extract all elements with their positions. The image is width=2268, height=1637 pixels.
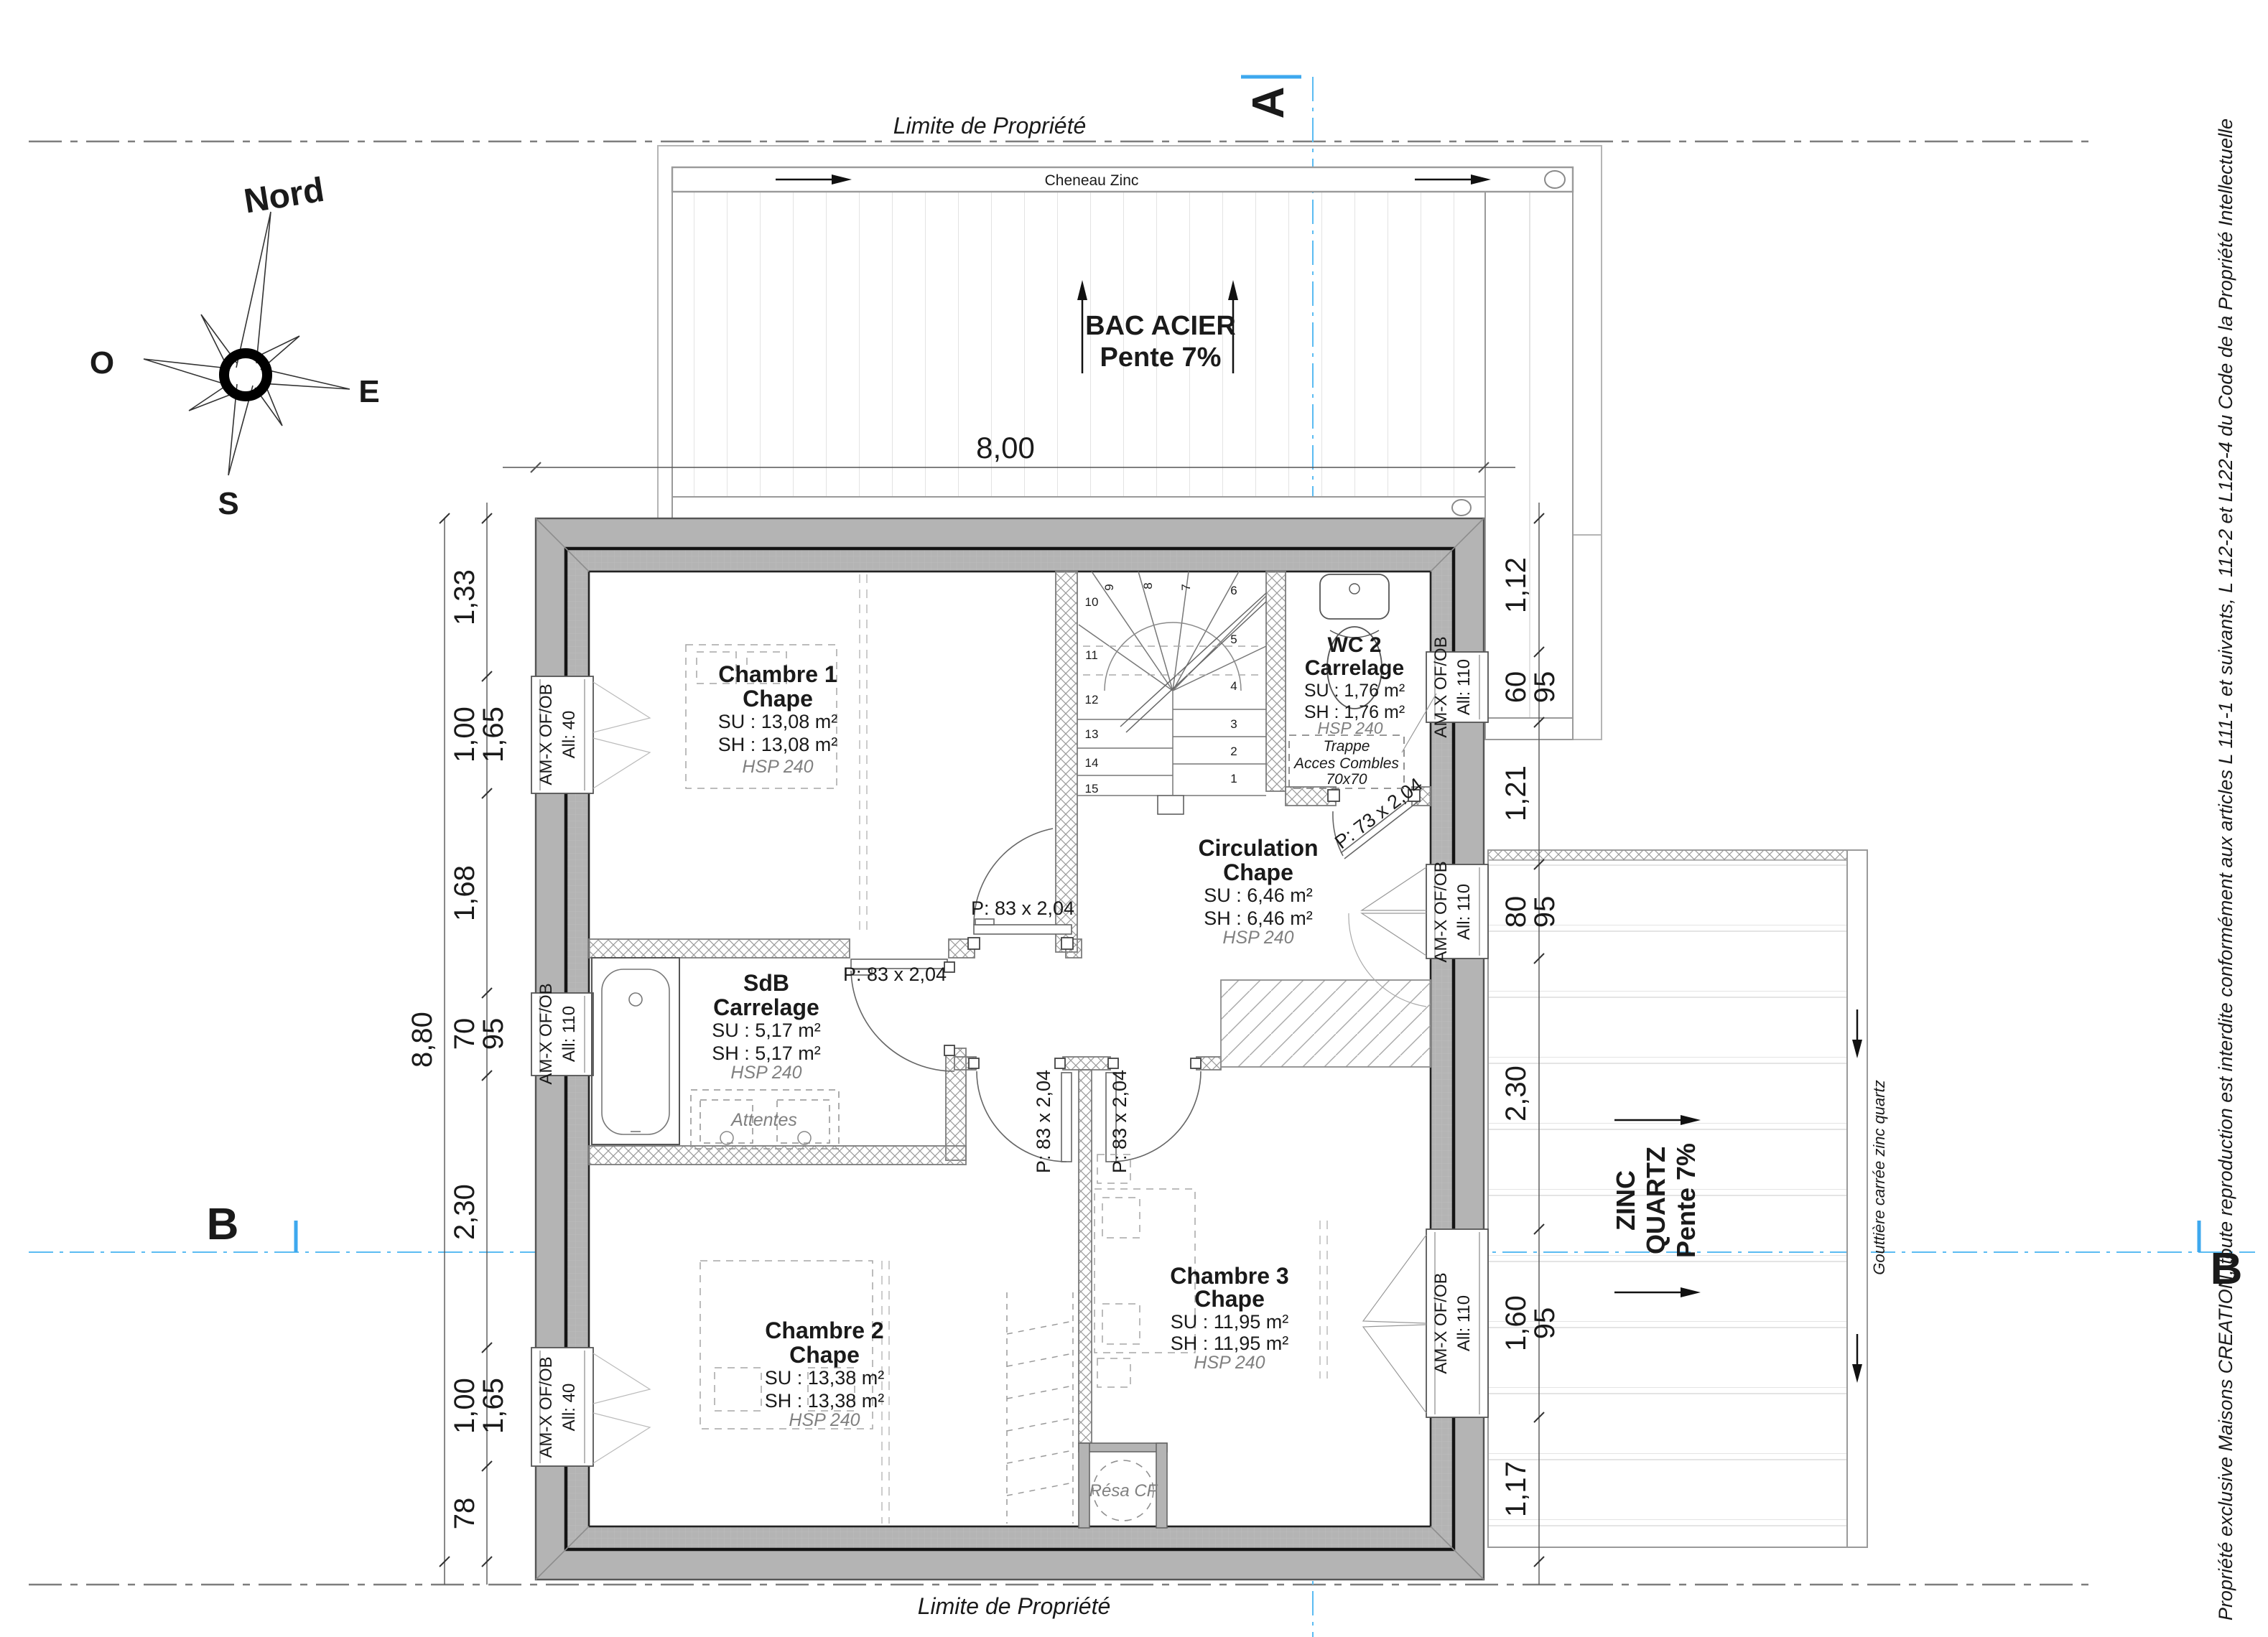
svg-text:Chambre 3: Chambre 3 <box>1170 1263 1288 1289</box>
svg-text:1,00: 1,00 <box>449 1378 480 1434</box>
svg-text:Chape: Chape <box>1223 859 1293 885</box>
svg-text:SU : 11,95 m²: SU : 11,95 m² <box>1171 1311 1289 1333</box>
window-brand-label: AM-X OF/OB <box>536 1356 556 1458</box>
property-limit-top: Limite de Propriété <box>29 113 2097 141</box>
svg-text:SH : 13,08 m²: SH : 13,08 m² <box>718 734 838 755</box>
section-b-left-label: B <box>207 1200 239 1249</box>
dim-8m-label: 8,00 <box>976 431 1035 465</box>
svg-text:14: 14 <box>1085 756 1099 770</box>
svg-text:Chape: Chape <box>789 1342 860 1368</box>
svg-text:15: 15 <box>1085 782 1099 796</box>
window-sill-label: All: 110 <box>1454 659 1474 715</box>
floor-plan-drawing: Limite de Propriété Limite de Propriété … <box>0 0 2268 1637</box>
compass-east-label: E <box>358 374 379 409</box>
zinc-gutter <box>1847 850 1867 1547</box>
svg-text:1,33: 1,33 <box>449 569 480 625</box>
window-sill-label: All: 110 <box>1454 1295 1474 1351</box>
door-label: P: 83 x 2,04 <box>843 964 947 985</box>
svg-text:Circulation: Circulation <box>1198 835 1318 861</box>
window-sill-label: All: 40 <box>559 1384 579 1432</box>
svg-text:Chape: Chape <box>743 686 813 712</box>
window-sill-label: All: 40 <box>559 711 579 759</box>
svg-text:SdB: SdB <box>743 970 789 996</box>
door-label: P: 83 x 2,04 <box>1109 1070 1130 1173</box>
svg-text:SU : 1,76 m²: SU : 1,76 m² <box>1304 681 1405 701</box>
svg-text:6: 6 <box>1230 584 1237 597</box>
svg-text:70x70: 70x70 <box>1326 771 1367 788</box>
dimension-left: 1,33 1,00 1,65 1,68 70 95 2,30 1,00 1,65… <box>406 503 509 1585</box>
window-sill-label: All: 110 <box>1454 884 1474 940</box>
svg-text:1,65: 1,65 <box>478 706 509 762</box>
window-brand-label: AM-X OF/OB <box>1431 1272 1451 1374</box>
svg-text:Carrelage: Carrelage <box>713 994 819 1020</box>
svg-text:Chambre 2: Chambre 2 <box>765 1317 883 1343</box>
window-sill-label: All: 110 <box>559 1006 579 1062</box>
svg-text:SH : 5,17 m²: SH : 5,17 m² <box>712 1043 821 1064</box>
svg-text:HSP 240: HSP 240 <box>730 1063 801 1083</box>
resa-cf-label: Résa CF <box>1089 1481 1158 1501</box>
svg-text:SH : 13,38 m²: SH : 13,38 m² <box>765 1390 885 1412</box>
svg-text:Chambre 1: Chambre 1 <box>718 661 837 687</box>
svg-text:SU : 5,17 m²: SU : 5,17 m² <box>712 1020 821 1041</box>
zinc-label-1: ZINC <box>1611 1170 1640 1231</box>
svg-text:SH : 6,46 m²: SH : 6,46 m² <box>1204 908 1313 929</box>
svg-text:12: 12 <box>1085 693 1099 706</box>
floor-plan-page: Limite de Propriété Limite de Propriété … <box>0 0 2268 1637</box>
window-brand-label: AM-X OF/OB <box>1431 636 1451 737</box>
svg-text:Acces Combles: Acces Combles <box>1293 755 1399 772</box>
svg-text:8,80: 8,80 <box>406 1012 438 1068</box>
svg-text:11: 11 <box>1085 648 1098 662</box>
svg-text:8: 8 <box>1141 582 1155 589</box>
room-wc2: WC 2 Carrelage SU : 1,76 m² SH : 1,76 m²… <box>1293 633 1405 788</box>
svg-text:7: 7 <box>1179 584 1193 590</box>
window-brand-label: AM-X OF/OB <box>1431 861 1451 962</box>
svg-text:Trappe: Trappe <box>1324 738 1370 755</box>
svg-text:70: 70 <box>449 1018 480 1050</box>
svg-text:HSP 240: HSP 240 <box>1194 1353 1265 1373</box>
svg-text:3: 3 <box>1230 717 1237 731</box>
zinc-label-3: Pente 7% <box>1671 1143 1701 1258</box>
svg-text:2: 2 <box>1230 745 1237 758</box>
svg-text:5: 5 <box>1230 633 1237 646</box>
compass-north-label: Nord <box>241 171 327 221</box>
compass-south-label: S <box>218 486 238 521</box>
svg-text:HSP 240: HSP 240 <box>1317 719 1382 737</box>
svg-text:10: 10 <box>1085 595 1099 609</box>
svg-text:SU : 6,46 m²: SU : 6,46 m² <box>1204 885 1313 906</box>
attentes-label: Attentes <box>730 1110 797 1130</box>
svg-text:SU : 13,38 m²: SU : 13,38 m² <box>765 1367 885 1389</box>
svg-text:9: 9 <box>1102 584 1116 590</box>
window-brand-label: AM-X OF/OB <box>536 983 556 1084</box>
svg-text:HSP 240: HSP 240 <box>742 757 813 777</box>
section-a-label: A <box>1244 87 1293 119</box>
zinc-label-2: QUARTZ <box>1641 1147 1670 1254</box>
property-limit-top-label: Limite de Propriété <box>893 113 1087 139</box>
svg-text:HSP 240: HSP 240 <box>1222 928 1293 948</box>
svg-text:60: 60 <box>1500 671 1532 704</box>
window-brand-label: AM-X OF/OB <box>536 684 556 785</box>
svg-text:1: 1 <box>1230 772 1237 785</box>
property-limit-bottom: Limite de Propriété <box>29 1585 2097 1619</box>
svg-text:78: 78 <box>449 1498 480 1530</box>
svg-text:SU : 13,08 m²: SU : 13,08 m² <box>718 711 838 732</box>
svg-text:1,60: 1,60 <box>1500 1295 1532 1351</box>
svg-text:SH : 11,95 m²: SH : 11,95 m² <box>1171 1333 1289 1354</box>
svg-text:Chape: Chape <box>1194 1286 1265 1312</box>
svg-text:95: 95 <box>1529 671 1561 704</box>
door-label: P: 83 x 2,04 <box>1033 1070 1054 1173</box>
svg-text:1,65: 1,65 <box>478 1378 509 1434</box>
svg-text:HSP 240: HSP 240 <box>789 1410 860 1430</box>
roof-material-label: BAC ACIER <box>1085 311 1236 341</box>
svg-text:1,68: 1,68 <box>449 865 480 921</box>
roof-slope-label: Pente 7% <box>1100 342 1222 373</box>
svg-text:1,21: 1,21 <box>1500 765 1532 821</box>
svg-text:WC 2: WC 2 <box>1328 633 1382 657</box>
gutter-note-label: Gouttière carrée zinc quartz <box>1870 1080 1888 1274</box>
svg-text:1,00: 1,00 <box>449 706 480 762</box>
cheneau-zinc-label: Cheneau Zinc <box>1045 172 1139 189</box>
closet <box>1221 980 1431 1067</box>
svg-text:80: 80 <box>1500 896 1532 928</box>
compass-west-label: O <box>90 345 114 381</box>
property-limit-bottom-label: Limite de Propriété <box>918 1593 1111 1619</box>
cheneau-zinc-gutter: Cheneau Zinc <box>672 167 1573 192</box>
svg-text:2,30: 2,30 <box>449 1184 480 1240</box>
svg-text:4: 4 <box>1230 679 1237 693</box>
roof-zinc: ZINC QUARTZ Pente 7% Gouttière carrée zi… <box>1488 850 1888 1547</box>
svg-text:1,17: 1,17 <box>1500 1461 1532 1517</box>
svg-text:95: 95 <box>1529 1307 1561 1340</box>
svg-text:95: 95 <box>478 1018 509 1050</box>
svg-text:Carrelage: Carrelage <box>1305 656 1404 680</box>
compass-rose: Nord O E S <box>90 171 380 521</box>
svg-text:2,30: 2,30 <box>1500 1065 1532 1121</box>
svg-text:13: 13 <box>1085 727 1099 741</box>
svg-text:95: 95 <box>1529 896 1561 928</box>
copyright-notice: Propriété exclusive Maisons CREATION, to… <box>2215 118 2236 1620</box>
svg-text:1,12: 1,12 <box>1500 557 1532 613</box>
door-label: P: 83 x 2,04 <box>971 897 1074 919</box>
